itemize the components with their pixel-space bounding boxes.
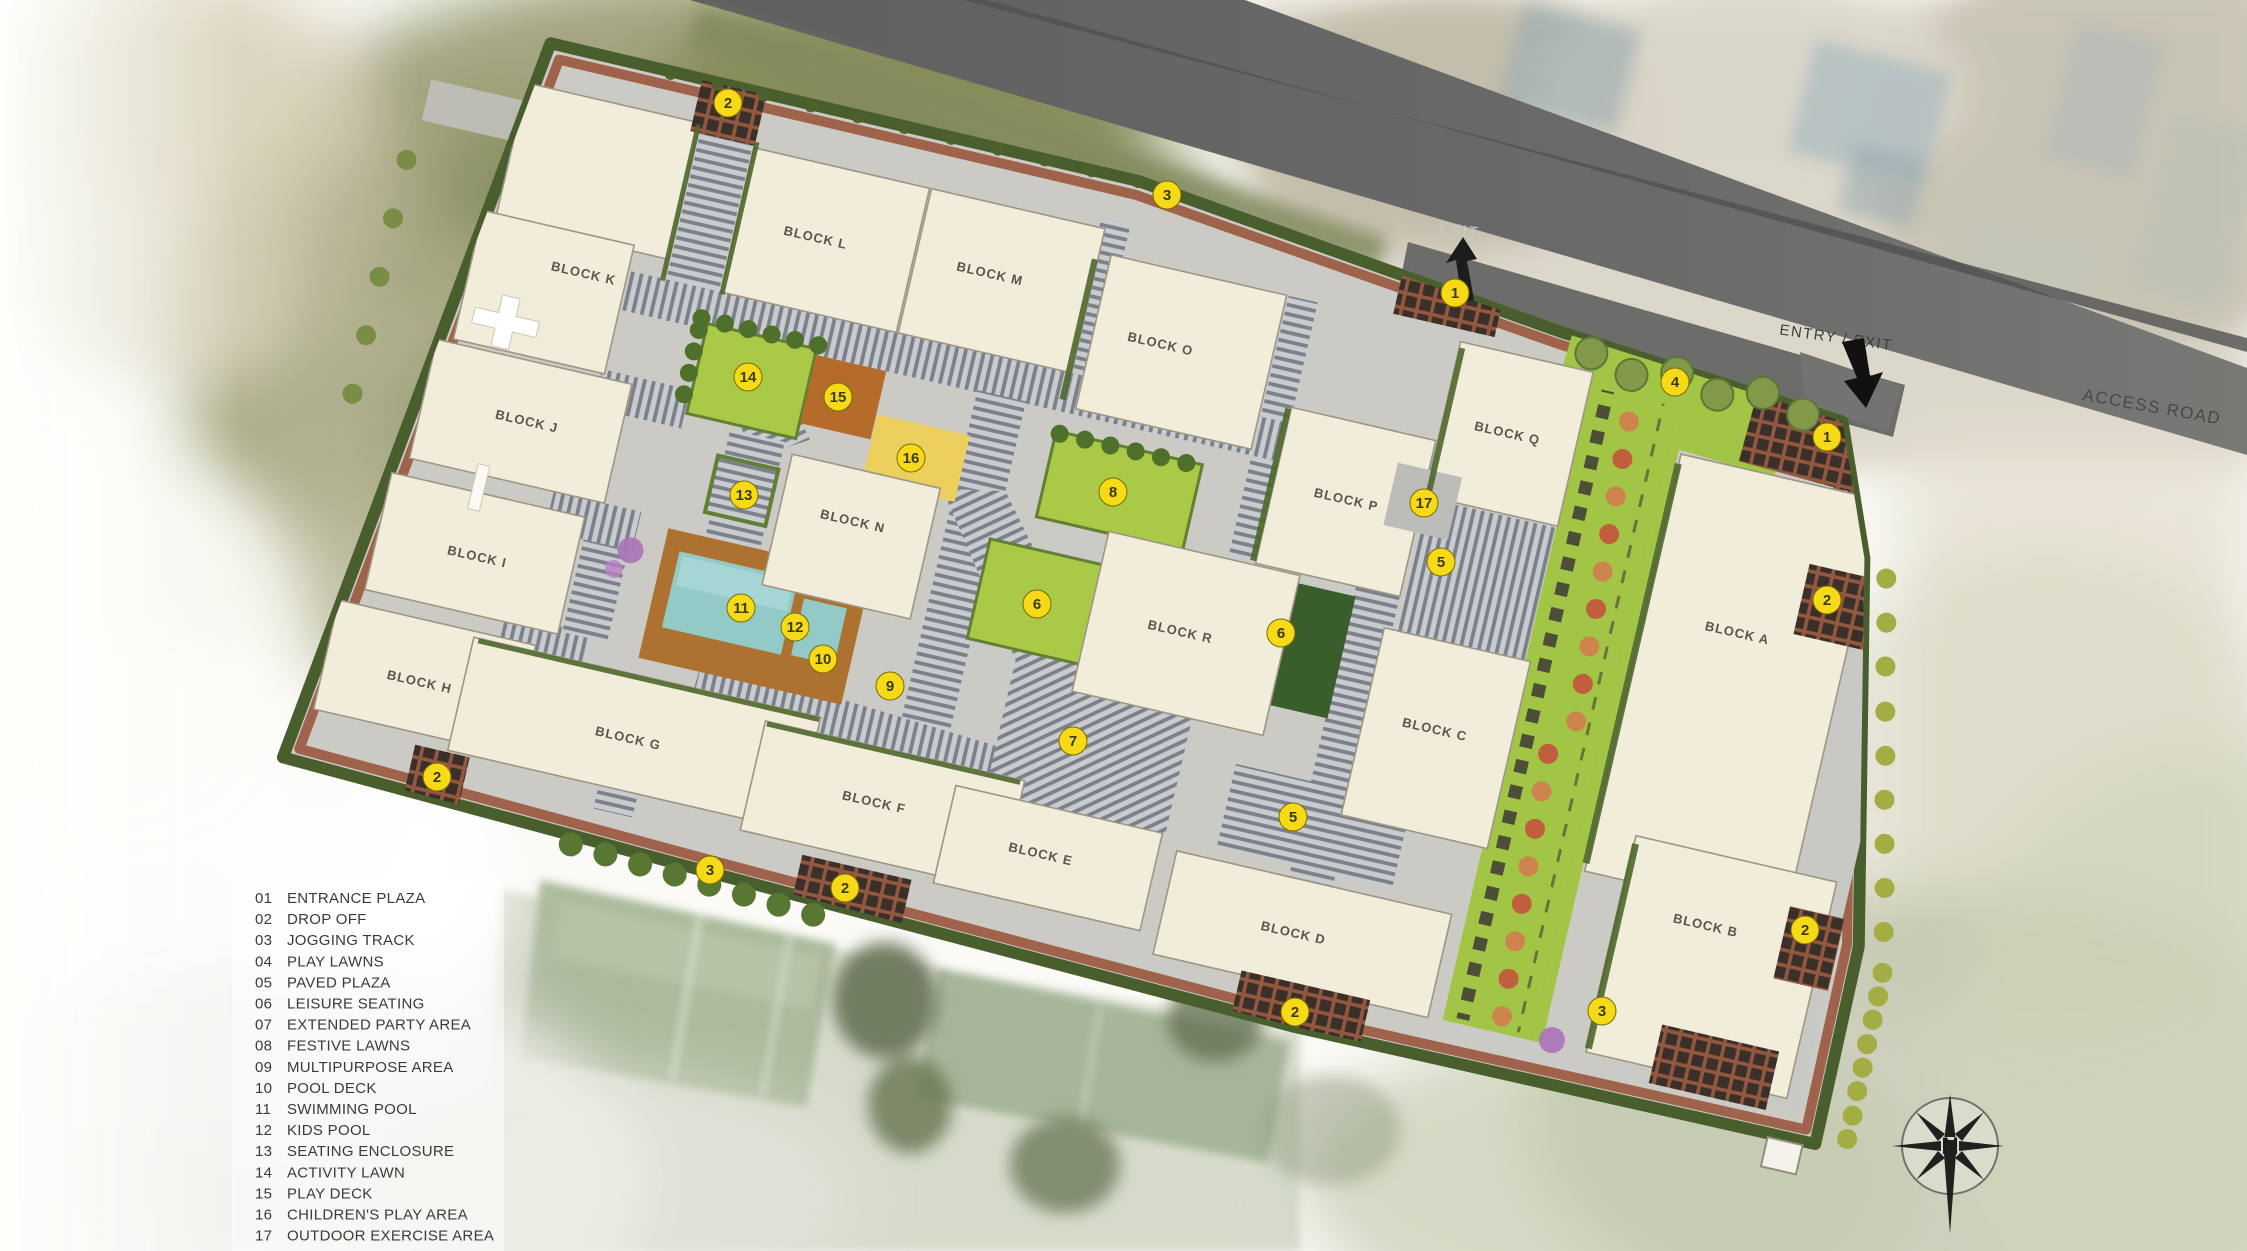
svg-text:2: 2 <box>433 769 441 786</box>
svg-text:OUTDOOR EXERCISE AREA: OUTDOOR EXERCISE AREA <box>287 1228 494 1245</box>
svg-text:14: 14 <box>255 1164 272 1181</box>
svg-text:6: 6 <box>1033 596 1041 613</box>
svg-text:LEISURE SEATING: LEISURE SEATING <box>287 996 425 1013</box>
svg-text:2: 2 <box>1801 922 1809 939</box>
svg-text:04: 04 <box>255 953 272 970</box>
svg-text:17: 17 <box>255 1228 272 1245</box>
svg-text:10: 10 <box>815 651 832 668</box>
svg-text:3: 3 <box>1598 1003 1606 1020</box>
svg-text:2: 2 <box>1823 592 1831 609</box>
svg-text:EXTENDED PARTY AREA: EXTENDED PARTY AREA <box>287 1017 471 1034</box>
svg-text:4: 4 <box>1671 374 1680 391</box>
svg-text:11: 11 <box>733 600 749 617</box>
svg-text:17: 17 <box>1416 495 1433 512</box>
svg-text:16: 16 <box>255 1207 272 1224</box>
svg-text:03: 03 <box>255 932 272 949</box>
svg-text:SWIMMING POOL: SWIMMING POOL <box>287 1101 417 1118</box>
svg-text:MULTIPURPOSE AREA: MULTIPURPOSE AREA <box>287 1059 454 1076</box>
svg-text:09: 09 <box>255 1059 272 1076</box>
svg-text:FESTIVE LAWNS: FESTIVE LAWNS <box>287 1038 410 1055</box>
svg-text:6: 6 <box>1277 625 1285 642</box>
svg-text:DROP OFF: DROP OFF <box>287 911 367 928</box>
svg-text:2: 2 <box>724 95 732 112</box>
svg-text:16: 16 <box>903 450 920 467</box>
svg-text:PLAY LAWNS: PLAY LAWNS <box>287 953 384 970</box>
svg-text:13: 13 <box>255 1143 272 1160</box>
svg-text:2: 2 <box>1291 1004 1299 1021</box>
svg-text:13: 13 <box>736 487 753 504</box>
svg-text:PLAY DECK: PLAY DECK <box>287 1185 373 1202</box>
svg-text:N: N <box>1941 1133 1958 1160</box>
svg-text:08: 08 <box>255 1038 272 1055</box>
svg-text:1: 1 <box>1451 285 1459 302</box>
svg-text:KIDS POOL: KIDS POOL <box>287 1122 371 1139</box>
svg-text:ENTRANCE PLAZA: ENTRANCE PLAZA <box>287 890 425 907</box>
svg-text:14: 14 <box>740 369 757 386</box>
svg-text:02: 02 <box>255 911 272 928</box>
svg-text:3: 3 <box>706 862 714 879</box>
svg-text:12: 12 <box>787 619 804 636</box>
svg-text:JOGGING TRACK: JOGGING TRACK <box>287 932 415 949</box>
svg-text:06: 06 <box>255 996 272 1013</box>
svg-text:7: 7 <box>1069 733 1077 750</box>
svg-text:10: 10 <box>255 1080 272 1097</box>
svg-text:8: 8 <box>1109 484 1117 501</box>
svg-text:12: 12 <box>255 1122 272 1139</box>
svg-text:07: 07 <box>255 1017 272 1034</box>
svg-text:2: 2 <box>841 880 849 897</box>
svg-text:SEATING ENCLOSURE: SEATING ENCLOSURE <box>287 1143 454 1160</box>
svg-text:01: 01 <box>255 890 272 907</box>
svg-text:11: 11 <box>255 1101 271 1118</box>
svg-text:POOL DECK: POOL DECK <box>287 1080 377 1097</box>
svg-text:9: 9 <box>886 678 894 695</box>
svg-text:CHILDREN'S PLAY AREA: CHILDREN'S PLAY AREA <box>287 1207 468 1224</box>
svg-text:5: 5 <box>1437 554 1445 571</box>
svg-text:5: 5 <box>1289 809 1297 826</box>
svg-text:3: 3 <box>1163 187 1171 204</box>
svg-text:15: 15 <box>830 389 847 406</box>
svg-text:ACTIVITY LAWN: ACTIVITY LAWN <box>287 1164 405 1181</box>
svg-text:05: 05 <box>255 974 272 991</box>
svg-text:PAVED PLAZA: PAVED PLAZA <box>287 974 391 991</box>
svg-text:15: 15 <box>255 1185 272 1202</box>
svg-text:1: 1 <box>1823 429 1831 446</box>
